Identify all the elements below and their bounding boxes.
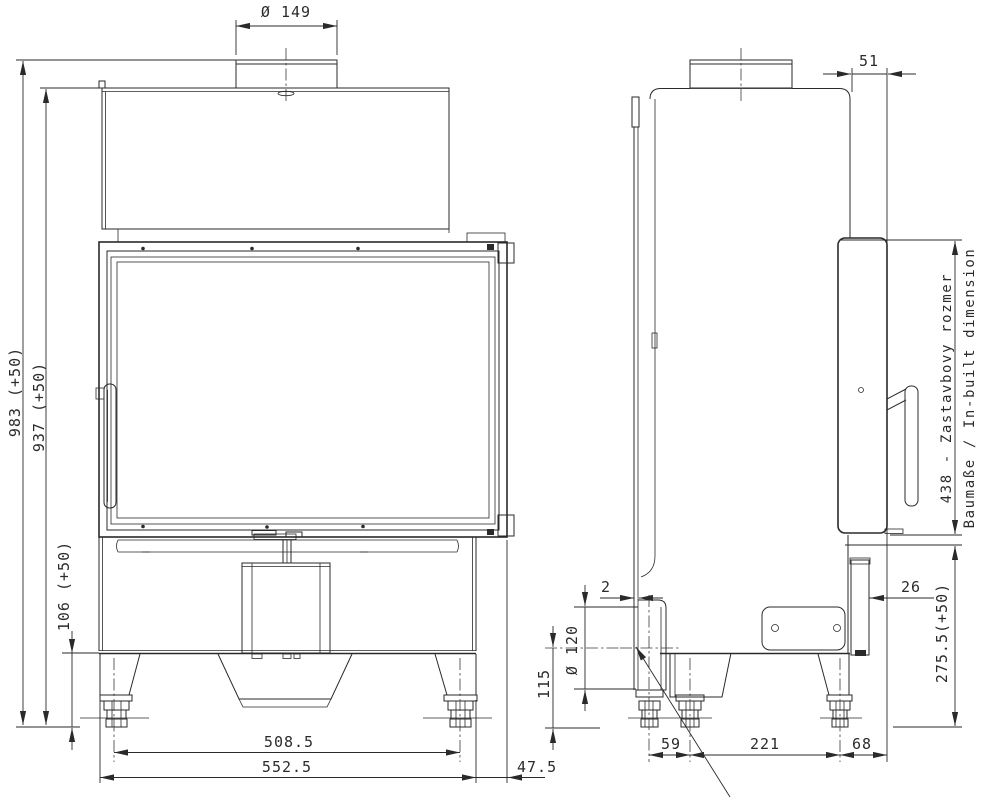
dim-overall-width-label: 552.5 <box>262 758 312 776</box>
side-body <box>632 89 864 691</box>
side-view <box>620 48 918 797</box>
side-view-dimensions: 51 438 - Zastavbovy rozmer Baumaße / In-… <box>535 52 978 762</box>
front-lower-casing <box>99 534 476 653</box>
lower-front-channel <box>851 560 869 655</box>
door-bolt <box>361 525 365 529</box>
side-rear-foot <box>636 690 663 727</box>
front-flue-collar <box>236 48 337 101</box>
door-frame-inner <box>107 251 499 530</box>
technical-drawing-page: Ø 149 983 (+50) 937 (+50) 106 (+50) <box>0 0 999 798</box>
door-glass <box>117 262 489 518</box>
plate-hole <box>772 625 779 632</box>
air-intake-leader-line <box>636 647 730 797</box>
rear-shield-tab <box>632 97 639 127</box>
side-door-frame <box>838 238 887 533</box>
side-front-foot <box>818 654 852 727</box>
side-door-handle[interactable] <box>887 386 918 506</box>
dim-rear-gap-label: 2 <box>601 578 611 596</box>
dim-front-foot-setback-label: 68 <box>852 735 872 753</box>
side-hole <box>859 388 864 393</box>
door-bolt <box>141 247 145 251</box>
air-intake-pipe <box>620 600 680 690</box>
front-view-dimensions: Ø 149 983 (+50) 937 (+50) 106 (+50) <box>6 3 557 783</box>
dim-rear-feet-gap-label: 59 <box>661 735 681 753</box>
right-leg <box>423 654 492 762</box>
plate-hole <box>834 625 841 632</box>
front-door <box>96 242 514 537</box>
casing-top-tab <box>99 81 105 88</box>
technical-drawing: Ø 149 983 (+50) 937 (+50) 106 (+50) <box>0 0 999 798</box>
dim-lower-panel-setback-label: 26 <box>901 578 921 596</box>
dim-lower-front-height-label: 275.5(+50) <box>933 583 951 683</box>
base-bowl <box>218 654 352 699</box>
side-access-plate <box>762 607 845 650</box>
door-bolt <box>265 525 269 529</box>
door-bolt <box>356 247 360 251</box>
door-bolt <box>250 247 254 251</box>
door-frame-outer <box>99 242 507 537</box>
front-view <box>80 48 514 762</box>
middle-housing <box>670 653 731 697</box>
dim-door-depth-label: 51 <box>859 52 879 70</box>
side-door <box>838 238 918 534</box>
dim-lower-panel-setback: 26 <box>869 578 934 598</box>
dim-plinth-height: 106 (+50) <box>16 541 99 750</box>
hinge-top-bracket <box>467 233 505 242</box>
control-rod[interactable] <box>254 534 296 563</box>
dim-intake-diameter-label: Ø 120 <box>563 625 581 675</box>
door-bolt <box>141 525 145 529</box>
dim-plinth-height-label: 106 (+50) <box>55 541 73 631</box>
dim-frame-overhang: 47.5 <box>476 540 557 783</box>
door-hinge-top <box>487 243 514 263</box>
dim-frame-overhang-label: 47.5 <box>517 758 557 776</box>
dim-body-height-label: 937 (+50) <box>30 362 48 452</box>
door-hinge-bottom <box>487 515 514 536</box>
side-lower-front <box>620 558 870 697</box>
front-upper-casing <box>99 81 505 242</box>
dim-feet-row: 59 221 68 <box>649 735 887 755</box>
dim-overall-height-label: 983 (+50) <box>6 347 24 437</box>
dim-lower-front-height: 275.5(+50) <box>845 545 962 727</box>
dim-inbuilt-height-label: 438 - Zastavbovy rozmer <box>939 273 955 504</box>
dim-rear-gap: 2 <box>600 578 663 598</box>
side-flue-collar <box>690 48 792 104</box>
door-handle-mount <box>96 388 104 399</box>
dim-feet-spacing-label: 508.5 <box>264 733 314 751</box>
side-door-bottom-lip <box>885 529 903 534</box>
dim-feet-spacing: 508.5 <box>114 733 460 753</box>
dim-flue-diameter: Ø 149 <box>236 3 337 55</box>
dim-feet-spacing-label: 221 <box>750 735 780 753</box>
air-control-box <box>242 563 330 653</box>
rear-wall-slot <box>652 333 657 348</box>
dim-flue-diameter-label: Ø 149 <box>261 3 311 21</box>
dim-intake-center-height-label: 115 <box>535 669 553 699</box>
left-leg <box>80 654 149 762</box>
dim-inbuilt-height-translation-label: Baumaße / In-built dimension <box>962 248 978 529</box>
